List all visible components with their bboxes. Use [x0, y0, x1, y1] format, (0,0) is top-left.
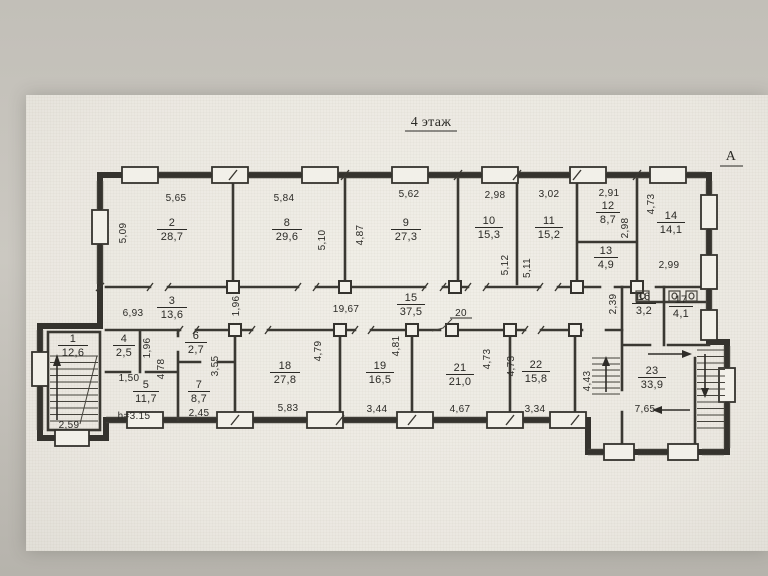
door-20-label: 20	[455, 308, 467, 319]
svg-text:2,5: 2,5	[116, 347, 132, 359]
dim-room23-width: 7,65	[635, 404, 656, 415]
svg-text:10: 10	[483, 215, 496, 227]
room-labels: 112,6 228,7 313,6 42,5 511,7 62,7 78,7 8…	[58, 200, 693, 405]
svg-text:8: 8	[284, 217, 290, 229]
room-21-label: 2121,0	[446, 362, 474, 388]
svg-text:15: 15	[405, 292, 418, 304]
svg-text:27,8: 27,8	[274, 374, 297, 386]
dim-hall-depth: 4,78	[156, 359, 167, 380]
svg-text:7: 7	[196, 379, 202, 391]
dim-room2-depth: 5,09	[118, 223, 129, 244]
dim-room19-depth: 4,81	[391, 336, 402, 357]
dim-room8-depth: 5,10	[317, 230, 328, 251]
dim-room11-width: 3,02	[539, 189, 560, 200]
room-1-label: 112,6	[58, 333, 88, 359]
svg-text:27,3: 27,3	[395, 231, 418, 243]
dim-corridor-length: 19,67	[333, 304, 360, 315]
svg-text:21,0: 21,0	[449, 376, 472, 388]
interior-walls-bottom-row	[106, 330, 575, 420]
svg-text:4: 4	[121, 333, 127, 345]
svg-text:8,7: 8,7	[191, 393, 207, 405]
dim-room11-depth: 5,11	[522, 258, 533, 278]
room-22-label: 2215,8	[522, 359, 550, 385]
dim-room18-depth: 4,79	[313, 341, 324, 362]
ceiling-height-note: h=3.15	[118, 411, 151, 422]
svg-text:37,5: 37,5	[400, 306, 423, 318]
svg-text:14: 14	[665, 210, 678, 222]
dim-room18-width: 5,83	[278, 403, 299, 414]
dim-room2-width: 5,65	[166, 193, 187, 204]
dim-room21-width: 4,67	[450, 404, 471, 415]
svg-text:6: 6	[193, 330, 199, 342]
dim-room7-depth: 3,55	[210, 356, 221, 377]
svg-text:12: 12	[602, 200, 615, 212]
room-11-label: 1115,2	[535, 215, 563, 241]
svg-text:22: 22	[530, 359, 543, 371]
dim-room14-width: 2,99	[659, 260, 680, 271]
dim-room14-depth: 4,73	[646, 194, 657, 215]
svg-text:13: 13	[600, 245, 613, 257]
svg-text:5: 5	[143, 379, 149, 391]
dim-room10-width: 2,98	[485, 190, 506, 201]
svg-text:21: 21	[454, 362, 467, 374]
room-8-label: 829,6	[272, 217, 302, 243]
dim-corridor-left: 6,93	[123, 308, 144, 319]
svg-text:17: 17	[675, 294, 688, 306]
room-14-label: 1414,1	[657, 210, 685, 236]
svg-text:15,2: 15,2	[538, 229, 561, 241]
svg-text:8,7: 8,7	[600, 214, 616, 226]
dim-room21-depth: 4,73	[482, 349, 493, 370]
svg-text:11,7: 11,7	[135, 393, 157, 405]
svg-text:12,6: 12,6	[62, 347, 85, 359]
room-23-label: 2333,9	[638, 365, 666, 391]
svg-text:33,9: 33,9	[641, 379, 664, 391]
dim-room9-depth: 4,87	[355, 225, 366, 246]
plan-title: 4 этаж	[405, 115, 457, 131]
svg-text:14,1: 14,1	[660, 224, 683, 236]
floor-title: 4 этаж	[411, 115, 452, 130]
svg-text:3: 3	[169, 295, 175, 307]
svg-text:15,3: 15,3	[478, 229, 501, 241]
room-3-label: 313,6	[157, 295, 187, 321]
room-15-label: 1537,5	[397, 292, 425, 318]
dim-room22-width: 3,34	[525, 404, 546, 415]
room-10-label: 1015,3	[475, 215, 503, 241]
section-marker: А	[720, 149, 743, 166]
svg-text:9: 9	[403, 217, 409, 229]
svg-text:4,1: 4,1	[673, 308, 689, 320]
dim-room7-width: 2,45	[189, 408, 210, 419]
dim-room12-depth: 2,98	[620, 218, 631, 239]
svg-text:28,7: 28,7	[161, 231, 184, 243]
room-7-label: 78,7	[188, 379, 210, 405]
dim-corridor-right: 2,39	[608, 294, 619, 315]
dim-room5-width: 1,50	[119, 373, 140, 384]
svg-text:18: 18	[279, 360, 292, 372]
dim-room12-width: 2,91	[599, 188, 620, 199]
svg-text:11: 11	[543, 215, 555, 227]
svg-text:4,9: 4,9	[598, 259, 614, 271]
dim-room4-depth: 1,96	[142, 338, 153, 359]
svg-text:15,8: 15,8	[525, 373, 548, 385]
svg-text:3,2: 3,2	[636, 305, 652, 317]
room-13-label: 134,9	[594, 245, 618, 271]
svg-text:13,6: 13,6	[161, 309, 184, 321]
room-4-label: 42,5	[113, 333, 135, 359]
svg-text:16: 16	[638, 291, 651, 303]
svg-text:29,6: 29,6	[276, 231, 299, 243]
dim-room19-width: 3,44	[367, 404, 388, 415]
stairwell-1	[50, 354, 98, 424]
svg-text:2: 2	[169, 217, 175, 229]
dim-corridor-niche: 1,96	[231, 296, 242, 317]
room-2-label: 228,7	[157, 217, 187, 243]
dim-room23-depth: 4,43	[582, 371, 593, 392]
room-6-label: 62,7	[185, 330, 207, 356]
room-9-label: 927,3	[391, 217, 421, 243]
room-19-label: 1916,5	[366, 360, 394, 386]
svg-text:16,5: 16,5	[369, 374, 392, 386]
stair-1-break-line	[80, 356, 97, 424]
floor-plan: 4 этаж А	[0, 0, 768, 576]
svg-text:1: 1	[70, 333, 76, 345]
dim-room8-width: 5,84	[274, 193, 295, 204]
room-18-label: 1827,8	[270, 360, 300, 386]
svg-text:23: 23	[646, 365, 659, 377]
dim-stair1-width: 2,59	[59, 420, 80, 431]
svg-text:19: 19	[374, 360, 387, 372]
dim-room22-depth: 4,73	[506, 356, 517, 377]
svg-text:2,7: 2,7	[188, 344, 204, 356]
dim-room9-width: 5,62	[399, 189, 420, 200]
section-letter: А	[726, 149, 737, 164]
dim-room10-depth: 5,12	[500, 255, 511, 276]
corridor-columns	[227, 281, 643, 336]
room-12-label: 128,7	[596, 200, 620, 226]
